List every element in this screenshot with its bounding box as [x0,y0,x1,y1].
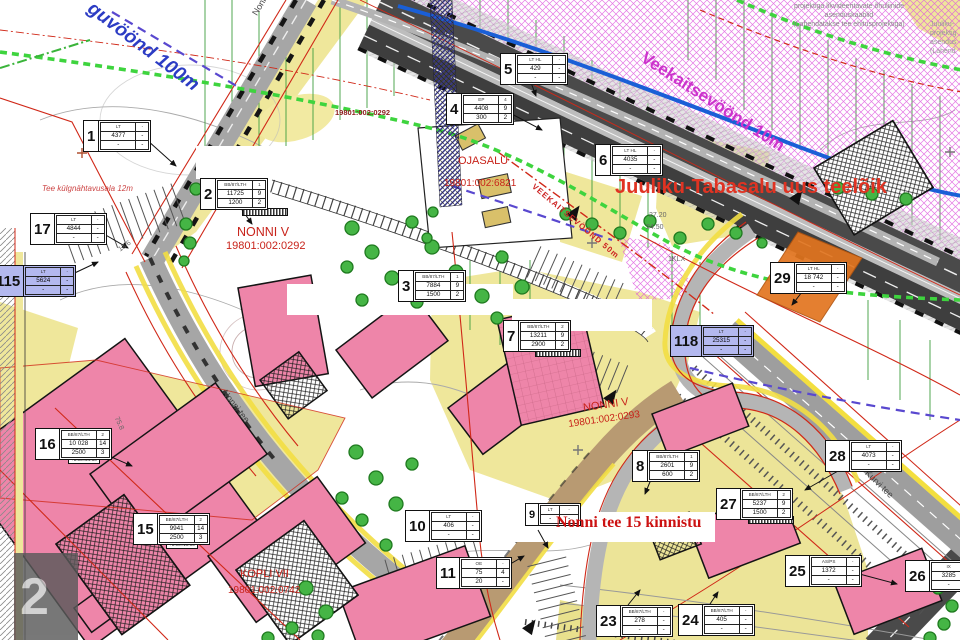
parcel-cell: - [61,286,74,295]
parcel-cell: - [136,141,149,150]
parcel-cell: - [851,461,886,470]
parcel-box-5: 5LT HL-429--- [500,53,568,85]
note-line: (Lahend [930,47,956,56]
parcel-cell: IX [931,563,960,572]
parcel-cell: BB/87/LTH [61,431,96,440]
parcel-cell: 2 [556,341,569,350]
parcel-box-28: 28LT-4073--- [825,440,902,472]
sight-area-note: Tee külgnähtavusala 12m [42,184,133,193]
parcel-code-nonni-v1: 19801:002:0292 [226,240,306,252]
parcel-cell: - [739,616,752,625]
parcel-number: 16 [36,429,60,459]
edge-clipped-note: Juuliku- projektig asendus (Lahend [930,20,956,56]
parcel-cell: - [56,234,91,243]
parcel-number: 8 [633,451,648,481]
parcel-box-3: 3BB/87/LTH17884915002 [398,270,466,302]
note-line: projektig [930,29,956,38]
parcel-box-115: 115LT-5624--- [0,265,76,297]
parcel-cell: - [466,513,479,522]
parcel-cell: 5237 [742,500,777,509]
parcel-cell: 4844 [56,225,91,234]
parcel-box-2: 2BB/87/LTH111725912002 [200,178,268,210]
parcel-number: 9 [526,504,539,525]
parcel-number: 24 [679,605,703,635]
parcel-cell: - [831,283,844,292]
note-line: asenduskaablid [770,11,928,20]
parcel-number: 3 [399,271,414,301]
parcel-cell: 14 [96,440,109,449]
parcel-cell: - [91,234,104,243]
parcel-cell: OE [461,560,496,569]
parcel-box-11: 11OE-75420- [436,557,512,589]
parcel-number: 23 [597,606,621,636]
sheet-watermark: 2 [14,553,78,640]
parcel-cell: - [136,132,149,141]
parcel-cell: - [431,531,466,540]
parcel-number: 118 [671,326,702,356]
parcel-cell: BB/87/LTH [704,607,739,616]
parcel-cell: - [831,265,844,274]
parcel-number: 2 [201,179,216,209]
parcel-cell: 1200 [218,199,253,208]
note-line: Juuliku- [930,20,956,29]
parcel-cell: 11725 [218,190,253,199]
parcel-name-nonni-v1: NONNI V [237,225,289,239]
parcel-cell: 2900 [521,341,556,350]
parcel-cell: - [648,156,661,165]
parcel-cell: - [648,147,661,156]
parcel-cell: LT [851,443,886,452]
parcel-box-118: 118LT-25315--- [670,325,754,357]
parcel-cell: 4 [496,569,509,578]
parcel-number: 28 [826,441,850,471]
parcel-cell: LT [101,123,136,132]
parcel-cell: 2 [499,114,512,123]
parcel-cell: 9 [451,282,464,291]
parcel-box-6: 6LT HL-4035--- [595,144,663,176]
parcel-cell: LT HL [518,56,553,65]
parcel-cell: - [136,123,149,132]
parcel-code-top: 19801:002:0292 [335,108,390,117]
parcel-code-kopli: 19801:002:0742 [228,585,300,596]
parcel-cell: 2 [194,516,207,525]
parcel-cell: - [657,608,670,617]
parcel-number: 17 [31,214,55,244]
parcel-box-27: 27BB/87/LTH25237915002 [716,488,793,520]
parcel-number: 115 [0,266,24,296]
parcel-cell: 9 [556,332,569,341]
parcel-name-kopli: KOPLI VII [240,568,289,580]
parcel-cell: BB/87/LTH [622,608,657,617]
parcel-cell: - [739,346,752,355]
note-line: projektiga likvideeritavate õhuliinide [770,2,928,11]
parcel-cell: LT [431,513,466,522]
parcel-cell: - [846,567,859,576]
parcel-cell: BB/87/LTH [159,516,194,525]
parcel-cell: - [553,65,566,74]
parcel-cell: - [931,581,960,590]
parcel-cell: - [811,576,846,585]
parcel-cell: 2 [96,431,109,440]
parcel-number: 1 [84,121,99,151]
parcel-cell: - [704,625,739,634]
parcel-cell: 5624 [26,277,61,286]
parcel-cell: - [553,74,566,83]
parcel-box-1: 1LT-4377--- [83,120,151,152]
parcel-cell: 1372 [811,567,846,576]
parcel-cell: 300 [464,114,499,123]
parcel-box-24: 24BB/87/LTH-405--- [678,604,755,636]
parcel-cell: 2 [777,509,790,518]
parcel-cell: - [739,337,752,346]
parcel-cell: - [739,625,752,634]
parcel-cell: - [796,283,831,292]
parcel-number: 6 [596,145,611,175]
cadastral-plan-map: 2 guvöönd 100m Veekaitsevöönd 10m VEEKAI… [0,0,960,640]
parcel-cell: - [91,225,104,234]
parcel-cell: - [886,452,899,461]
parcel-cell: 2 [451,291,464,300]
parcel-cell: 9 [777,500,790,509]
parcel-cell: - [61,268,74,277]
parcel-cell: - [704,346,739,355]
parcel-cell: 1 [685,453,698,462]
parcel-box-7: 7BB/87/LTH213211929002 [503,320,571,352]
parcel-number: 29 [771,263,795,293]
parcel-cell: 9 [253,190,266,199]
parcel-box-26: 26IX-3285--- [905,560,960,592]
measure-1klx: 1KLX [668,256,685,263]
parcel-box-10: 10LT-406--- [405,510,482,542]
parcel-cell: 4073 [851,452,886,461]
parcel-cell: 9 [685,462,698,471]
parcel-cell: - [101,141,136,150]
parcel-cell: 600 [650,471,685,480]
parcel-cell: LT [704,328,739,337]
parcel-cell: LT [26,268,61,277]
parcel-cell: 13211 [521,332,556,341]
parcel-box-17: 17LT-4844--- [30,213,107,245]
parcel-cell: - [622,626,657,635]
parcel-cell: - [466,522,479,531]
note-line: (Lahendatakse tee ehitusprojektiga) [770,20,928,29]
parcel-number: 11 [437,558,460,588]
parcel-cell: - [657,626,670,635]
parcel-cell: 9941 [159,525,194,534]
parcel-cell: 9 [499,105,512,114]
parcel-cell: 3 [194,534,207,543]
measure-27-20: 27.20 [649,212,667,219]
parcel-cell: - [61,277,74,286]
nonni15-note: Nonni tee 15 kinnistu [556,514,701,532]
parcel-cell: 406 [431,522,466,531]
parcel-cell: BB/87/LTH [416,273,451,282]
parcel-number: 7 [504,321,519,351]
parcel-cell: 2601 [650,462,685,471]
parcel-number: 5 [501,54,516,84]
parcel-cell: 2 [777,491,790,500]
parcel-cell: LT HL [796,265,831,274]
parcel-box-29: 29LT HL-18 742--- [770,262,847,294]
parcel-cell: - [496,578,509,587]
parcel-cell: - [846,576,859,585]
parcel-number: 4 [447,94,462,124]
parcel-cell: EP [464,96,499,105]
parcel-cell: 3285 [931,572,960,581]
new-road-title: Juuliku-Tabasalu uus teelõik [615,176,887,199]
parcel-box-25: 25AS/PS-1372--- [785,555,862,587]
parcel-cell: 1 [451,273,464,282]
parcel-cell: BB/87/LTH [521,323,556,332]
parcel-cell: 75 [461,569,496,578]
parcel-cell: 25315 [704,337,739,346]
parcel-cell: 405 [704,616,739,625]
parcel-cell: - [496,560,509,569]
parcel-cell: 4377 [101,132,136,141]
parcel-cell: BB/87/LTH [218,181,253,190]
parcel-cell: - [739,328,752,337]
parcel-cell: - [657,617,670,626]
parcel-name-ojasalu: OJASALU [458,155,508,167]
parcel-box-16: 16BB/87/LTH210 0281425003 [35,428,112,460]
measure-24-50: 24.50 [646,224,664,231]
parcel-cell: - [846,558,859,567]
parcel-code-ojasalu: 19801:002:6821 [444,178,516,189]
parcel-cell: 2500 [159,534,194,543]
parcel-cell: BB/87/LTH [742,491,777,500]
parcel-cell: 3 [96,449,109,458]
parcel-cell: - [886,461,899,470]
parcel-box-15: 15BB/87/LTH299411425003 [133,513,210,545]
parcel-cell: 4 [499,96,512,105]
parcel-cell: - [886,443,899,452]
parcel-cell: 20 [461,578,496,587]
parcel-cell: 7884 [416,282,451,291]
parcel-cell: 10 028 [61,440,96,449]
parcel-cell: - [466,531,479,540]
parcel-cell: 429 [518,65,553,74]
parcel-number: 25 [786,556,810,586]
parcel-number: 15 [134,514,158,544]
parcel-cell: 2500 [61,449,96,458]
parcel-cell: LT HL [613,147,648,156]
parcel-cell: - [739,607,752,616]
parcel-cell: - [831,274,844,283]
parcel-cell: - [553,56,566,65]
parcel-cell: 18 742 [796,274,831,283]
parcel-number: 27 [717,489,741,519]
parcel-box-23: 23BB/87/LTH-278--- [596,605,673,637]
note-line: asendus [930,38,956,47]
parcel-cell: 278 [622,617,657,626]
parcel-cell: 4035 [613,156,648,165]
parcel-cell: 2 [556,323,569,332]
parcel-cell: - [648,165,661,174]
parcel-number: 10 [406,511,430,541]
parcel-cell: 1500 [416,291,451,300]
parcel-cell: - [26,286,61,295]
parcel-cell: - [613,165,648,174]
parcel-cell: AS/PS [811,558,846,567]
cable-replacement-note: projektiga likvideeritavate õhuliinide a… [770,2,928,29]
parcel-cell: LT [56,216,91,225]
parcel-cell: BB/87/LTH [650,453,685,462]
parcel-cell: - [91,216,104,225]
parcel-cell: 1500 [742,509,777,518]
parcel-cell: - [518,74,553,83]
parcel-box-4: 4EP4440893002 [446,93,514,125]
parcel-cell: 4408 [464,105,499,114]
parcel-cell: 2 [685,471,698,480]
parcel-number: 26 [906,561,930,591]
parcel-cell: 2 [253,199,266,208]
parcel-cell: 1 [253,181,266,190]
parcel-cell: 14 [194,525,207,534]
parcel-box-8: 8BB/87/LTH1260196002 [632,450,700,482]
